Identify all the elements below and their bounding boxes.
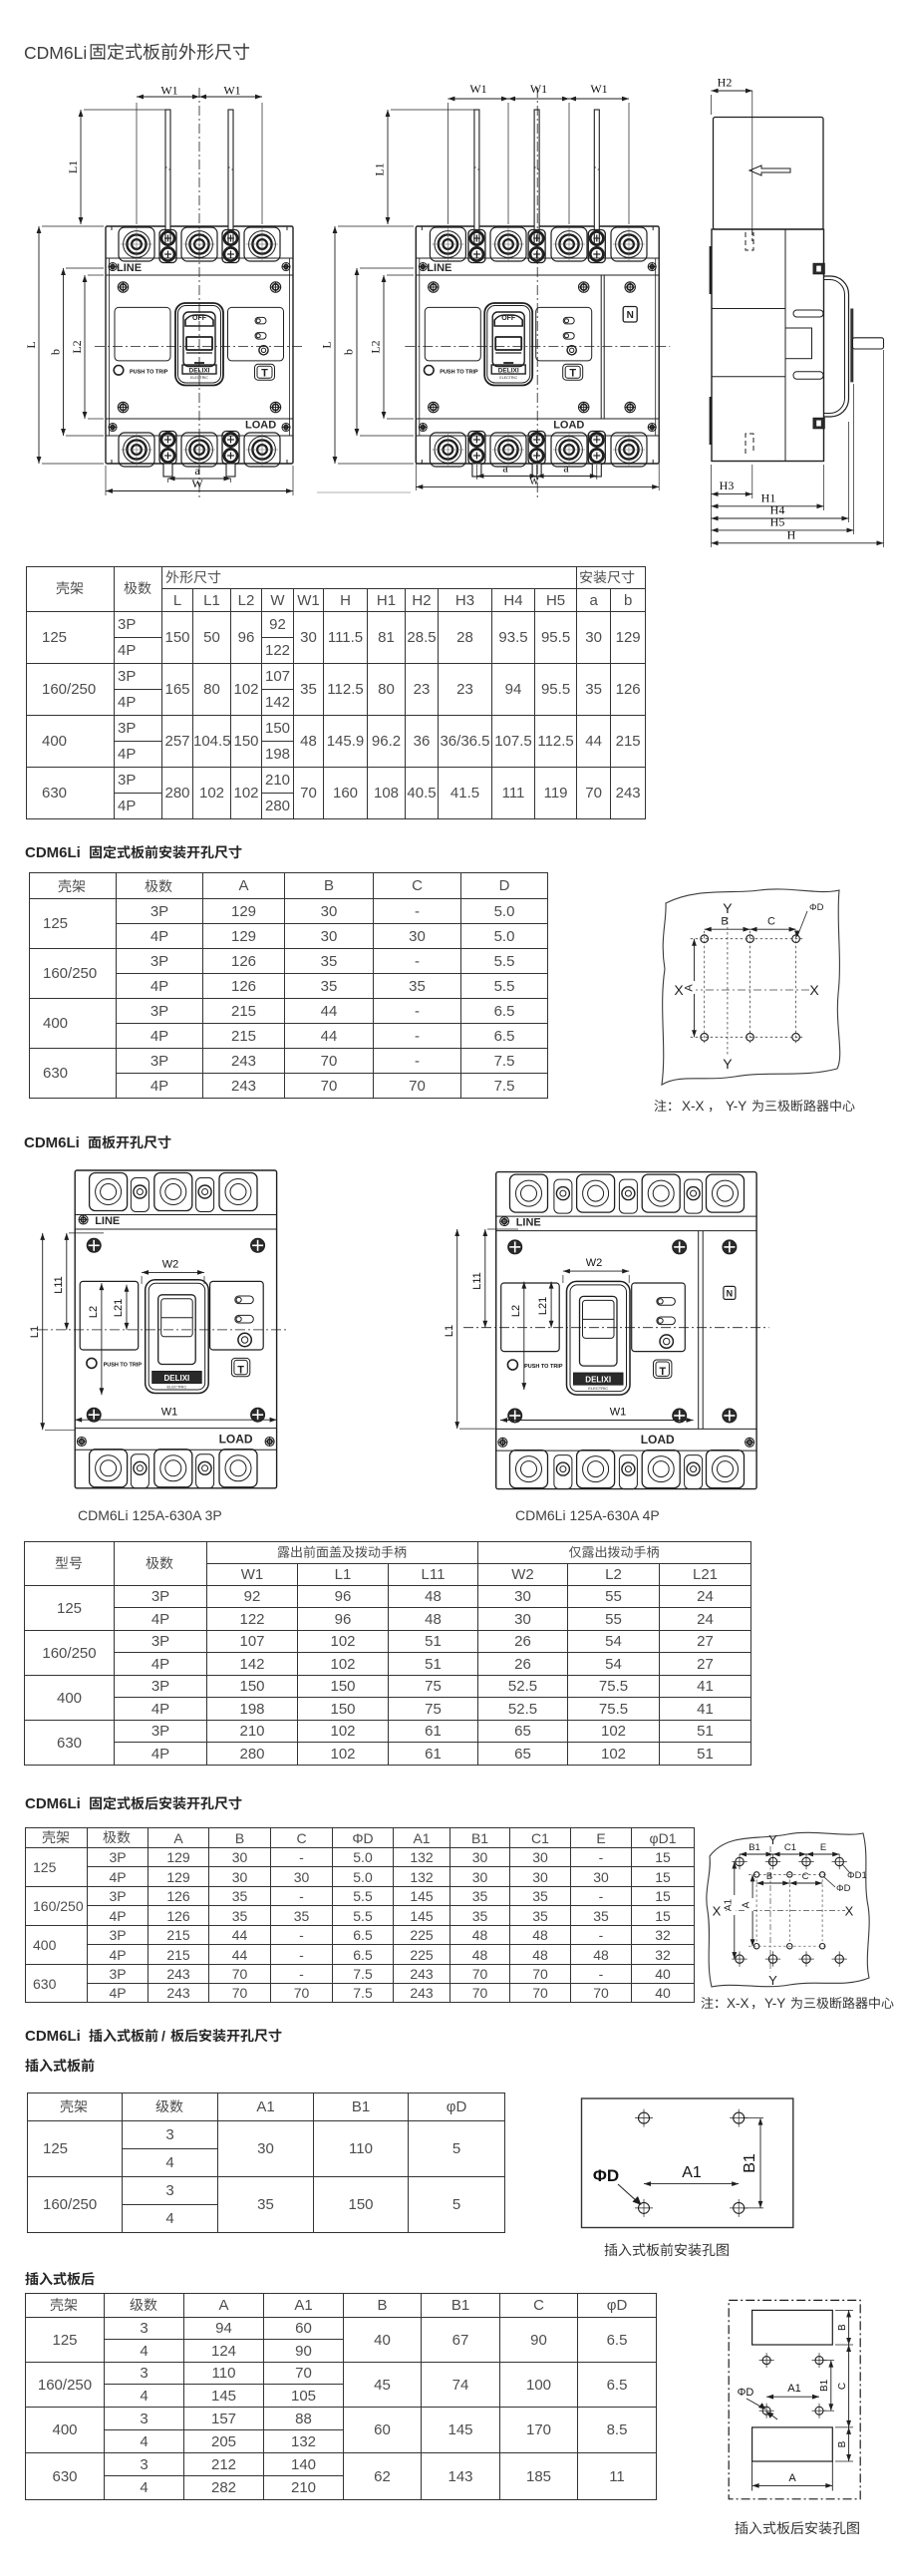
svg-text:b: b: [342, 349, 356, 355]
svg-text:W1: W1: [160, 84, 177, 98]
svg-text:Y: Y: [723, 1056, 733, 1072]
svg-text:/: /: [161, 2028, 165, 2044]
svg-text:W1: W1: [469, 82, 486, 96]
svg-text:X: X: [845, 1904, 854, 1919]
svg-text:L2: L2: [88, 1306, 100, 1318]
svg-text:N: N: [727, 1288, 734, 1298]
svg-text:ΦD: ΦD: [593, 2166, 619, 2185]
svg-text:ELECTRIC: ELECTRIC: [588, 1386, 608, 1391]
svg-text:L2: L2: [70, 340, 84, 353]
svg-text:OFF: OFF: [501, 315, 516, 322]
svg-text:L2: L2: [510, 1305, 522, 1317]
svg-text:ΦD: ΦD: [836, 1883, 851, 1894]
svg-text:W: W: [529, 477, 539, 487]
svg-text:DELIXI: DELIXI: [498, 368, 519, 375]
svg-text:LINE: LINE: [427, 262, 451, 274]
svg-text:ΦD: ΦD: [738, 2387, 754, 2399]
svg-text:X-X: X-X: [682, 1099, 705, 1114]
svg-text:ELECTRIC: ELECTRIC: [499, 376, 517, 380]
svg-text:B: B: [837, 2440, 848, 2447]
svg-text:LOAD: LOAD: [553, 420, 584, 432]
svg-text:DELIXI: DELIXI: [164, 1374, 190, 1383]
svg-text:W: W: [191, 477, 203, 490]
svg-text:L1: L1: [29, 1326, 41, 1338]
svg-text:LINE: LINE: [516, 1217, 541, 1229]
svg-text:L21: L21: [537, 1297, 549, 1315]
svg-text:a: a: [502, 462, 508, 476]
svg-text:H5: H5: [770, 514, 785, 528]
svg-text:Y: Y: [723, 900, 733, 916]
svg-text:X: X: [809, 982, 819, 998]
svg-text:H3: H3: [720, 479, 735, 492]
svg-text:T: T: [659, 1366, 666, 1378]
svg-text:L11: L11: [471, 1272, 483, 1290]
svg-text:X: X: [713, 1904, 722, 1919]
svg-text:ΦD: ΦD: [809, 902, 824, 913]
svg-text:a: a: [563, 462, 569, 476]
svg-text:A: A: [742, 1901, 752, 1908]
svg-text:A1: A1: [682, 2164, 702, 2181]
svg-text:W1: W1: [223, 84, 240, 98]
svg-text:C: C: [802, 1871, 809, 1882]
svg-text:B: B: [721, 916, 728, 928]
svg-text:Y: Y: [768, 1973, 777, 1988]
svg-text:PUSH TO TRIP: PUSH TO TRIP: [524, 1364, 563, 1370]
svg-text:B: B: [837, 2324, 848, 2331]
svg-text:DELIXI: DELIXI: [585, 1376, 611, 1385]
svg-text:Y: Y: [768, 1832, 777, 1847]
svg-text:B1: B1: [748, 1842, 760, 1853]
svg-text:LINE: LINE: [117, 262, 142, 274]
svg-text:L11: L11: [53, 1276, 65, 1294]
svg-text:T: T: [261, 368, 268, 380]
svg-text:A1: A1: [724, 1898, 735, 1911]
svg-text:A: A: [684, 984, 696, 992]
svg-text:B: B: [766, 1871, 772, 1882]
svg-text:L1: L1: [444, 1325, 455, 1337]
svg-text:PUSH TO TRIP: PUSH TO TRIP: [440, 369, 478, 375]
svg-text:LOAD: LOAD: [641, 1433, 675, 1447]
svg-text:C1: C1: [784, 1842, 796, 1853]
svg-text:L1: L1: [66, 161, 80, 173]
svg-text:ELECTRIC: ELECTRIC: [167, 1385, 187, 1390]
svg-text:T: T: [237, 1364, 244, 1376]
svg-text:b: b: [49, 349, 63, 355]
svg-text:A1: A1: [787, 2383, 800, 2395]
svg-text:L: L: [24, 341, 38, 348]
svg-text:A: A: [788, 2472, 796, 2484]
svg-text:LINE: LINE: [95, 1215, 120, 1227]
svg-text:LOAD: LOAD: [219, 1432, 253, 1446]
svg-text:W2: W2: [586, 1257, 603, 1269]
svg-text:LOAD: LOAD: [245, 420, 276, 432]
svg-text:C: C: [767, 916, 775, 928]
svg-text:L21: L21: [113, 1299, 125, 1317]
svg-text:E: E: [820, 1842, 826, 1853]
svg-text:ΦD1: ΦD1: [847, 1870, 867, 1881]
svg-text:L1: L1: [373, 162, 387, 175]
svg-text:W1: W1: [590, 82, 607, 96]
svg-text:W1: W1: [161, 1407, 178, 1419]
svg-text:Y-Y: Y-Y: [726, 1099, 747, 1114]
svg-text:B1: B1: [742, 2153, 758, 2173]
svg-text:B1: B1: [819, 2379, 830, 2392]
svg-text:a: a: [194, 464, 200, 478]
svg-text:T: T: [569, 368, 576, 380]
svg-text:PUSH TO TRIP: PUSH TO TRIP: [130, 369, 168, 375]
svg-text:C: C: [837, 2383, 848, 2390]
svg-text:W1: W1: [530, 82, 547, 96]
svg-text:L2: L2: [369, 340, 383, 353]
svg-text:W1: W1: [610, 1407, 627, 1419]
svg-text:H: H: [787, 527, 796, 541]
svg-text:PUSH TO TRIP: PUSH TO TRIP: [104, 1362, 143, 1368]
svg-text:L: L: [320, 341, 334, 348]
svg-text:N: N: [627, 310, 634, 321]
svg-text:H2: H2: [718, 76, 733, 90]
svg-text:W2: W2: [162, 1259, 179, 1271]
